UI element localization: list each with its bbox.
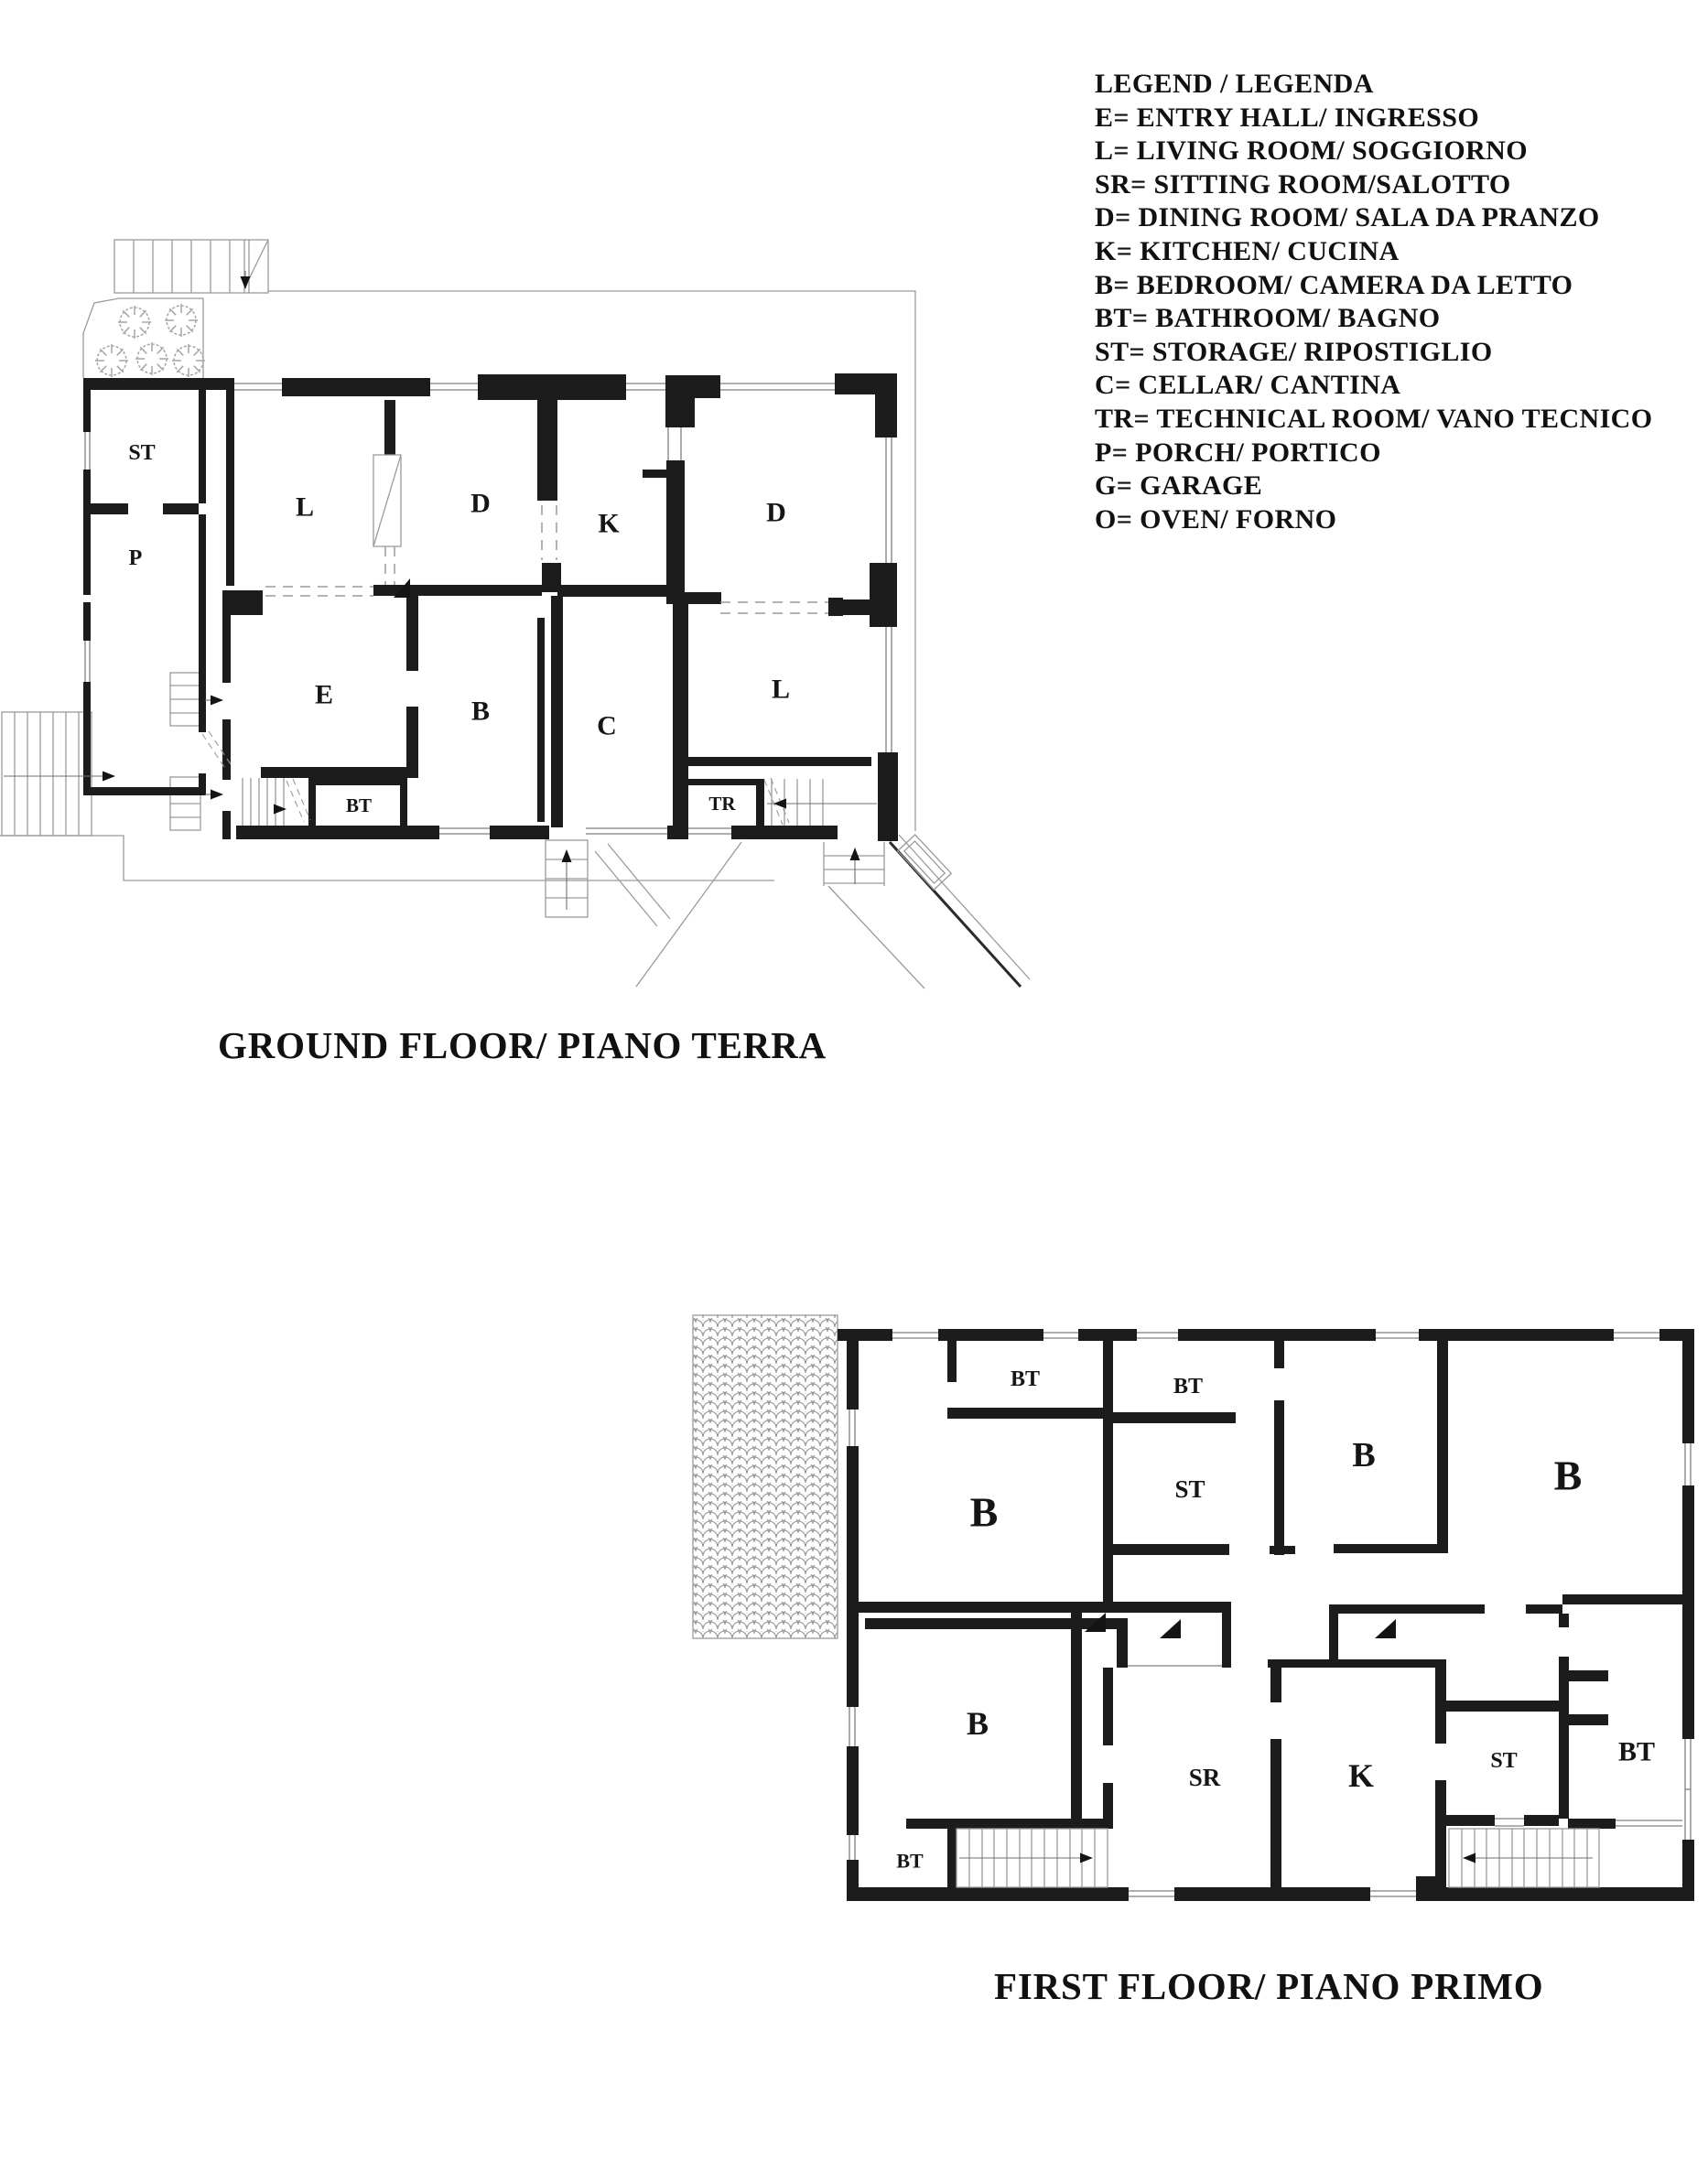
- room-label-tr: TR: [708, 793, 736, 815]
- room-label-l1: L: [296, 492, 314, 523]
- room-label-k: K: [598, 509, 620, 539]
- room-label-b: B: [471, 697, 490, 727]
- ground-stairs-left: [243, 778, 284, 826]
- ground-duct: [373, 455, 401, 546]
- room-label-bt2: BT: [1173, 1375, 1203, 1399]
- first-walls-interior: [859, 1341, 1682, 1887]
- room-label-k2: K: [1348, 1757, 1374, 1794]
- room-label-b4: B: [967, 1705, 989, 1742]
- room-label-c: C: [597, 711, 617, 741]
- ground-dashed-openings: [265, 505, 828, 613]
- room-label-sr: SR: [1189, 1764, 1221, 1791]
- room-label-d2: D: [766, 498, 786, 528]
- room-label-st2: ST: [1490, 1749, 1517, 1773]
- stairs-down-arrow: [1463, 1853, 1476, 1863]
- ground-cross-marks: [72, 362, 903, 852]
- room-label-st1: ST: [1174, 1475, 1205, 1503]
- room-label-l2: L: [772, 675, 790, 705]
- room-label-bt3: BT: [1618, 1737, 1655, 1767]
- ground-floor-plan: ST P L D K D E B C L BT TR: [0, 240, 1030, 988]
- first-door-triangles: [1085, 1613, 1396, 1638]
- floor-plan-drawing: ST P L D K D E B C L BT TR: [0, 0, 1708, 2171]
- tree-icon: [95, 304, 205, 377]
- room-label-b3: B: [1554, 1453, 1583, 1499]
- room-label-b2: B: [1352, 1436, 1375, 1474]
- room-label-bt: BT: [346, 794, 372, 816]
- room-label-b1: B: [970, 1489, 999, 1536]
- floor-plan-page: LEGEND / LEGENDA E= ENTRY HALL/ INGRESSO…: [0, 0, 1708, 2171]
- ground-walls: [83, 373, 898, 841]
- room-label-st: ST: [128, 441, 155, 465]
- stairs-up-arrow: [1080, 1853, 1093, 1863]
- room-label-e: E: [315, 680, 333, 710]
- room-label-bt1: BT: [1011, 1367, 1040, 1391]
- room-label-d1: D: [470, 489, 491, 519]
- room-label-p: P: [129, 546, 143, 570]
- ground-windows: [85, 383, 892, 834]
- roof-hatch: [693, 1315, 838, 1638]
- first-floor-plan: BT BT B ST B B B SR K ST BT BT: [693, 1313, 1703, 1915]
- room-label-bt4: BT: [896, 1850, 924, 1873]
